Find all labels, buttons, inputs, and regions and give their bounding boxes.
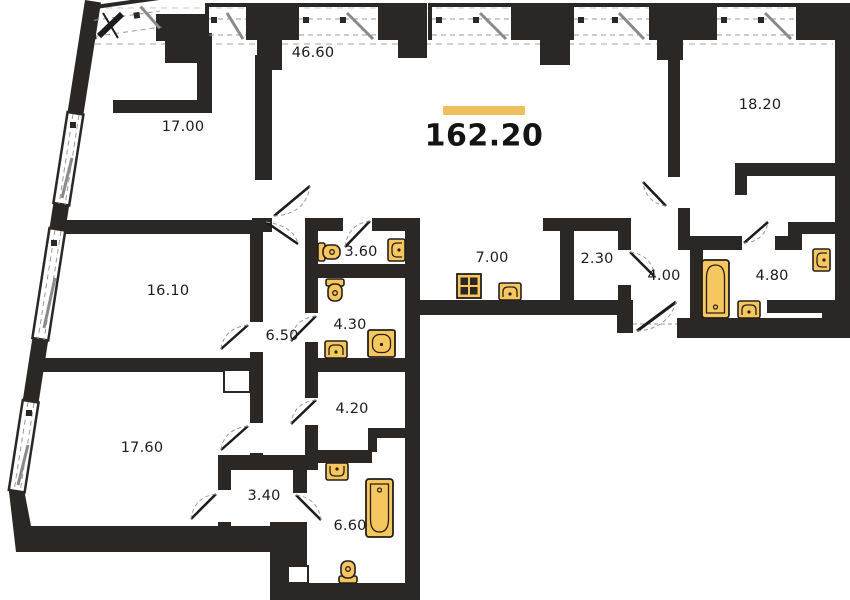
total-area-accent-bar bbox=[443, 106, 525, 115]
room-area-label-17-00: 17.00 bbox=[162, 119, 205, 135]
room-area-label-6-60: 6.60 bbox=[333, 518, 366, 534]
sink-icon bbox=[326, 463, 348, 480]
sink-icon bbox=[499, 283, 521, 300]
room-area-label-18-20: 18.20 bbox=[739, 97, 782, 113]
door bbox=[296, 495, 321, 520]
room-area-label-7-00: 7.00 bbox=[475, 250, 508, 266]
toilet-icon bbox=[339, 561, 357, 583]
door bbox=[274, 186, 310, 216]
door bbox=[266, 222, 298, 244]
door bbox=[221, 325, 248, 349]
door bbox=[291, 400, 316, 424]
entrance-door bbox=[633, 302, 677, 331]
stove-icon bbox=[457, 274, 481, 298]
window-bay bbox=[32, 228, 65, 341]
door bbox=[744, 222, 768, 243]
window-bay bbox=[9, 400, 39, 493]
sink-icon bbox=[388, 239, 405, 261]
room-area-label-4-80: 4.80 bbox=[755, 268, 788, 284]
floor-plan-drawing bbox=[0, 0, 850, 600]
shaft-mark-icon bbox=[99, 13, 122, 38]
bathtub-icon bbox=[366, 479, 393, 537]
room-area-label-3-40: 3.40 bbox=[247, 488, 280, 504]
room-area-label-3-60: 3.60 bbox=[344, 244, 377, 260]
door bbox=[221, 426, 248, 450]
toilet-icon bbox=[326, 279, 344, 301]
bathtub-icon bbox=[702, 260, 729, 318]
sink-icon bbox=[813, 249, 830, 271]
door bbox=[643, 182, 666, 206]
window-bay bbox=[53, 112, 83, 206]
door bbox=[191, 494, 216, 519]
room-area-label-4-20: 4.20 bbox=[335, 401, 368, 417]
floor-plan: 162.20 17.00 46.60 18.20 16.10 6.50 3.60… bbox=[0, 0, 850, 600]
shower-icon bbox=[368, 330, 395, 357]
toilet-icon bbox=[318, 243, 340, 261]
room-area-label-16-10: 16.10 bbox=[147, 283, 190, 299]
room-area-label-46-60: 46.60 bbox=[292, 45, 335, 61]
room-area-label-6-50: 6.50 bbox=[265, 328, 298, 344]
room-area-label-17-60: 17.60 bbox=[121, 440, 164, 456]
room-area-label-2-30: 2.30 bbox=[580, 251, 613, 267]
room-area-label-4-30: 4.30 bbox=[333, 317, 366, 333]
total-area-label: 162.20 bbox=[425, 119, 544, 154]
room-area-label-4-00: 4.00 bbox=[647, 268, 680, 284]
sink-icon bbox=[325, 341, 347, 358]
sink-icon bbox=[738, 301, 760, 318]
